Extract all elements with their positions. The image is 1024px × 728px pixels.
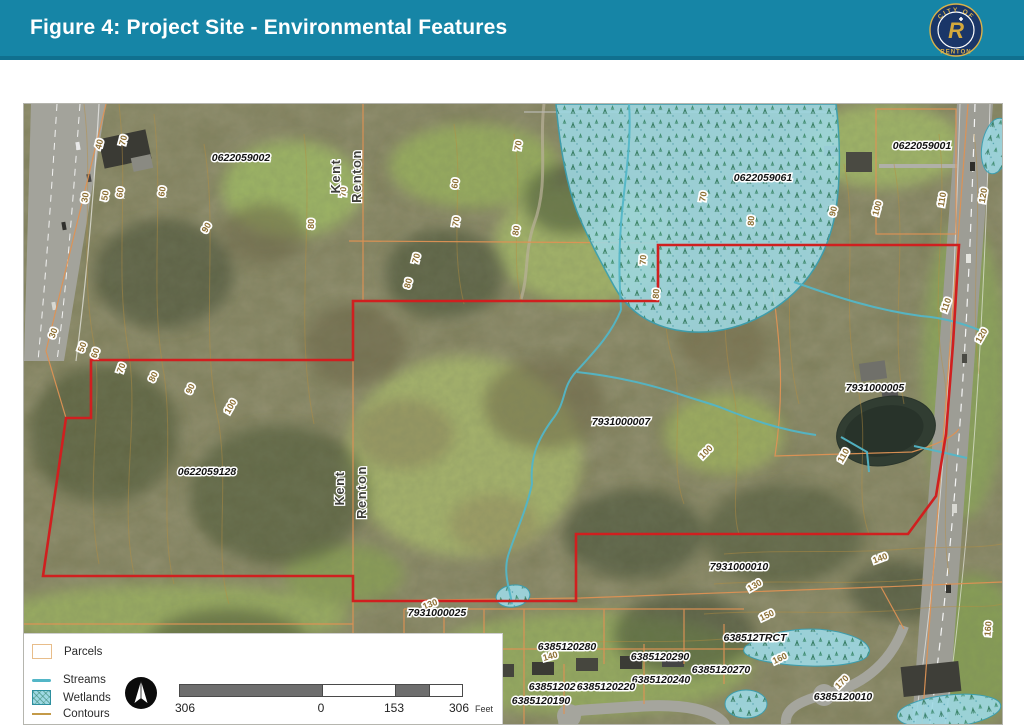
legend-label: Contours [63,708,110,720]
parcel-label: 6385120270 [692,664,751,676]
parcel-label: 6385120290 [631,651,690,663]
city-of-renton-logo: CITY OF RENTON R [929,3,983,57]
parcel-label: 7931000007 [592,416,652,428]
contour-label: 70 [697,191,709,203]
scale-bar-segments [179,684,463,697]
parcel-label: 6385120010 [814,691,873,703]
contour-label: 30 [79,192,91,204]
city-boundary-label: Kent [332,471,347,506]
parcel-label: 0622059002 [212,152,271,164]
parcel-label: 0622059128 [178,466,237,478]
legend-item-contours: Contours [32,708,110,720]
contour-label: 70 [638,254,649,265]
contour-label: 70 [512,140,524,152]
contour-label: 60 [114,187,126,199]
contour-label: 160 [982,621,993,637]
parcels-swatch-icon [32,644,52,659]
parcel-label: 6385120220 [577,681,636,693]
parcel-label: 6385120280 [538,641,597,653]
contour-label: 70 [450,216,462,228]
parcel-label: 7931000010 [710,561,769,573]
contours-swatch-icon [32,713,51,716]
figure-title: Figure 4: Project Site - Environmental F… [30,0,507,56]
parcel-label: 0622059061 [734,172,793,184]
wetland-blob [725,690,767,718]
map-legend: Parcels Streams Wetlands Contours [24,633,503,724]
map-svg: 4070305060609080707060708070803050607080… [24,104,1002,724]
contour-label: 50 [99,190,111,202]
streams-swatch-icon [32,679,51,682]
figure-header: Figure 4: Project Site - Environmental F… [0,0,1024,60]
map-panel: 4070305060609080707060708070803050607080… [23,103,1003,725]
legend-item-streams: Streams [32,674,106,686]
parcel-label: 7931000025 [408,607,467,619]
figure-page: Figure 4: Project Site - Environmental F… [0,0,1024,728]
scale-right: 306 [449,701,469,715]
scale-mid: 153 [384,701,404,715]
legend-item-parcels: Parcels [32,644,102,659]
contour-label: 80 [651,288,662,299]
contour-label: 80 [306,219,316,229]
wetlands-swatch-icon [32,690,51,705]
scale-bar: 306 0 153 306 Feet [179,684,461,720]
scale-left: 306 [175,701,195,715]
logo-letter-r: R [948,18,964,43]
legend-label: Streams [63,674,106,686]
scale-zero: 0 [318,701,325,715]
contour-label: 80 [510,225,522,237]
parcel-label: 638512TRCT [723,632,788,644]
logo-bottom-text: RENTON [940,50,971,56]
legend-item-wetlands: Wetlands [32,690,111,705]
city-boundary-label: Kent [328,159,343,194]
legend-label: Parcels [64,646,102,658]
contour-label: 80 [746,215,757,226]
legend-label: Wetlands [63,692,111,704]
scale-unit: Feet [475,704,493,714]
contour-label: 60 [449,178,461,190]
parcel-label: 0622059001 [893,140,952,152]
parcel-label: 6385120240 [632,674,691,686]
city-boundary-label: Renton [349,149,364,203]
parcel-label: 6385120190 [512,695,571,707]
north-arrow-icon [124,676,158,710]
contour-label: 60 [156,186,168,198]
parcel-label: 7931000005 [846,382,905,394]
city-boundary-label: Renton [354,465,369,519]
